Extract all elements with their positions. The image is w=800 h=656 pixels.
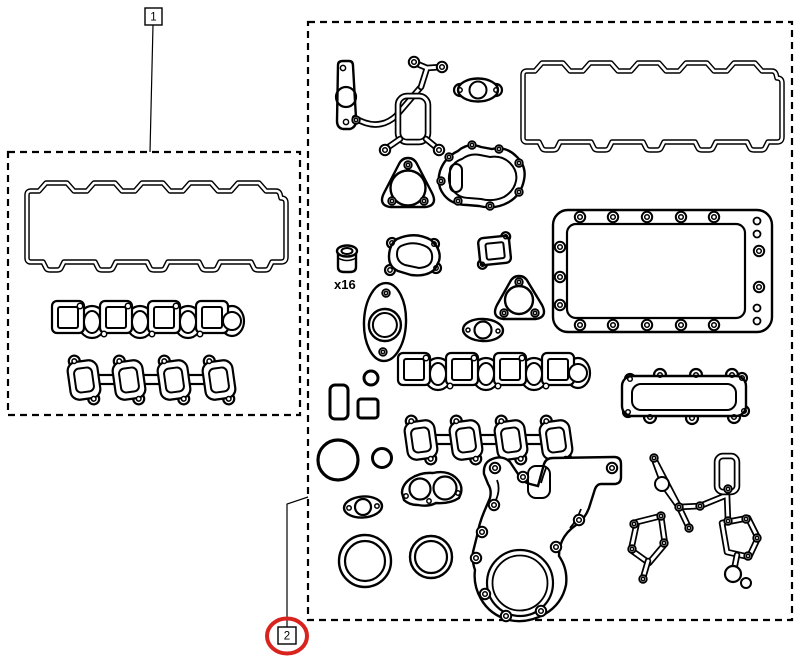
crankshaft-seal-large xyxy=(339,535,391,587)
twin-port-gasket xyxy=(402,472,461,506)
callout-1[interactable]: 1 xyxy=(145,8,162,152)
timing-cover-gasket xyxy=(471,457,621,621)
parts-diagram-page: x16 xyxy=(0,0,800,656)
rectangular-seal xyxy=(330,385,348,419)
round-port-gasket xyxy=(495,276,544,319)
valve-cover-gasket xyxy=(27,183,286,270)
intake-manifold-gasket xyxy=(52,301,244,338)
small-port-gasket xyxy=(475,232,513,269)
thermostat-housing-gasket xyxy=(382,158,434,207)
valve-stem-seal-count-label: x16 xyxy=(334,277,356,292)
o-ring-small xyxy=(364,371,378,385)
water-pump-gasket xyxy=(437,141,524,210)
callout-1-leader-line xyxy=(150,25,153,152)
front-cover-gasket xyxy=(336,57,447,155)
callout-2[interactable]: 2 xyxy=(267,497,308,654)
gasket-group-2: x16 xyxy=(318,57,782,621)
valve-cover-gasket-2 xyxy=(523,63,782,150)
square-seal xyxy=(358,399,378,418)
oil-cooler-cover-gasket xyxy=(622,369,749,424)
o-ring-large xyxy=(318,440,358,480)
intake-manifold-gasket-2 xyxy=(398,353,590,390)
o-ring-medium xyxy=(373,449,392,468)
oval-two-bolt-gasket xyxy=(463,318,504,341)
exhaust-manifold-gasket xyxy=(66,353,238,408)
gasket-kit-diagram: x16 xyxy=(0,0,800,656)
valve-stem-seal xyxy=(337,246,357,273)
oil-pan-gasket xyxy=(553,210,772,332)
side-cover-gasket xyxy=(628,454,761,588)
outlet-elbow-gasket xyxy=(385,235,441,275)
water-outlet-oval-gasket xyxy=(454,79,502,102)
oval-two-bolt-gasket-2 xyxy=(343,495,382,519)
callout-2-leader-line xyxy=(287,497,308,627)
crankshaft-seal-small xyxy=(410,536,452,578)
callout-2-label: 2 xyxy=(284,631,290,643)
gasket-group-1 xyxy=(27,183,286,407)
exhaust-flange-gasket xyxy=(363,282,408,361)
callout-1-label: 1 xyxy=(150,12,156,24)
